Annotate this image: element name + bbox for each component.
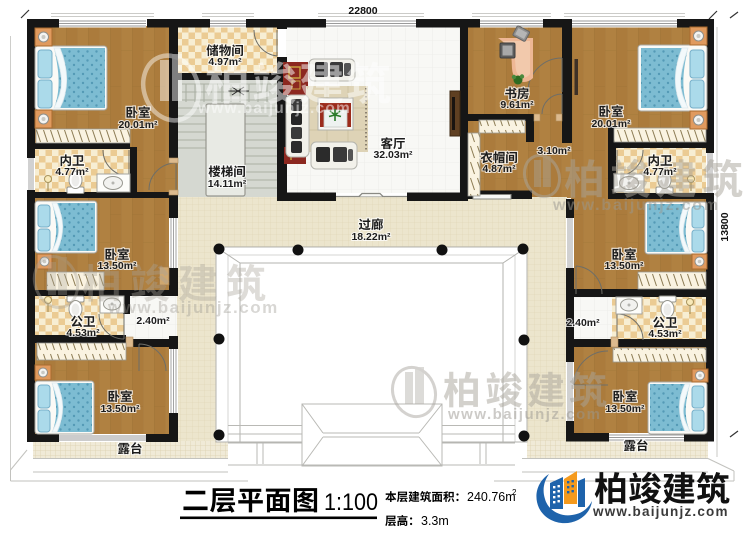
svg-text:22800: 22800 [348, 5, 377, 17]
svg-text:20.01m²: 20.01m² [118, 119, 158, 131]
svg-text:13.50m²: 13.50m² [100, 403, 140, 415]
svg-text:9.61m²: 9.61m² [500, 99, 534, 111]
svg-text:18.22m²: 18.22m² [351, 231, 391, 243]
svg-text:4.53m²: 4.53m² [648, 328, 682, 340]
svg-text:4.77m²: 4.77m² [643, 166, 677, 178]
svg-text:www.baijunjz.com: www.baijunjz.com [447, 406, 601, 423]
svg-text:32.03m²: 32.03m² [373, 149, 413, 161]
svg-text:3.3m: 3.3m [421, 514, 449, 528]
svg-text:14.11m²: 14.11m² [208, 178, 247, 190]
svg-text:13.50m²: 13.50m² [604, 260, 644, 272]
svg-text:2.40m²: 2.40m² [566, 317, 600, 329]
svg-text:4.87m²: 4.87m² [482, 163, 516, 175]
svg-text:240.76m: 240.76m [467, 490, 516, 504]
svg-text:www.baijunjz.com: www.baijunjz.com [197, 100, 351, 117]
svg-text:3.10m²: 3.10m² [537, 145, 571, 157]
svg-text:2.40m²: 2.40m² [136, 315, 170, 327]
svg-text:13800: 13800 [719, 212, 731, 241]
svg-text:13.50m²: 13.50m² [97, 260, 137, 272]
svg-text:www.baijunjz.com: www.baijunjz.com [592, 504, 729, 519]
svg-text:13.50m²: 13.50m² [605, 403, 645, 415]
svg-text:www.baijunjz.com: www.baijunjz.com [107, 298, 279, 317]
svg-text:4.77m²: 4.77m² [55, 166, 89, 178]
svg-text:2: 2 [512, 488, 517, 497]
svg-text:1:100: 1:100 [324, 489, 378, 516]
svg-text:4.97m²: 4.97m² [208, 56, 242, 68]
svg-text:4.53m²: 4.53m² [66, 327, 100, 339]
svg-text:20.01m²: 20.01m² [591, 118, 631, 130]
svg-text:www.baijunjz.com: www.baijunjz.com [552, 197, 720, 214]
